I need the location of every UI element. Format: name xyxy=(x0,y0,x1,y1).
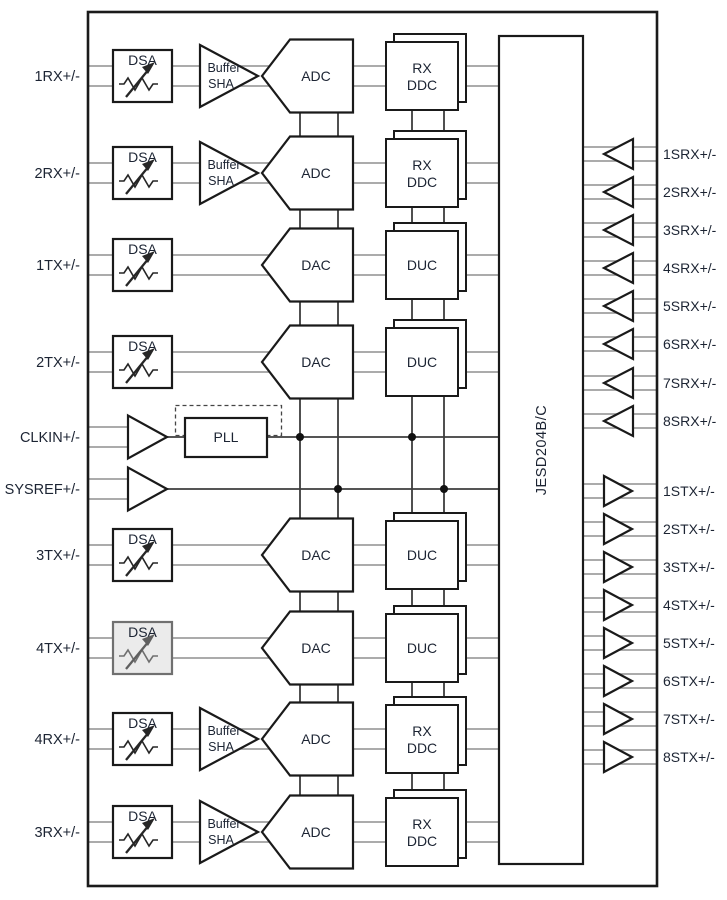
jesd-label: JESD204B/C xyxy=(534,405,550,495)
dsa-block: DSA xyxy=(113,622,172,674)
srx-receiver-triangle xyxy=(604,177,633,207)
buffer-sha-label: SHA xyxy=(208,77,234,91)
srx-port-label: 6SRX+/- xyxy=(663,336,717,352)
port-label: 3RX+/- xyxy=(34,825,80,841)
srx-port-label: 3SRX+/- xyxy=(663,222,717,238)
adc-label: ADC xyxy=(301,68,331,84)
srx-port-label: 5SRX+/- xyxy=(663,298,717,314)
serdes-tx-lane xyxy=(604,666,632,696)
dsa-block: DSA xyxy=(113,713,172,765)
signal-chain-row-3tx: DSADACDUC xyxy=(113,513,466,592)
clkin-buffer xyxy=(128,416,167,459)
dsa-label: DSA xyxy=(128,149,157,165)
stx-driver-triangle xyxy=(604,704,632,734)
signal-chain-row-2rx: DSABufferSHAADCRXDDC xyxy=(113,131,466,210)
serdes-tx-lane xyxy=(604,742,632,772)
buffer-sha-label: Buffer xyxy=(207,817,240,831)
dsa-block: DSA xyxy=(113,529,172,581)
serdes-tx-lane xyxy=(604,552,632,582)
srx-receiver-triangle xyxy=(604,253,633,283)
rx-ddc-label: DDC xyxy=(407,77,437,93)
signal-chain-row-1rx: DSABufferSHAADCRXDDC xyxy=(113,34,466,113)
duc-label: DUC xyxy=(407,354,437,370)
stx-driver-triangle xyxy=(604,742,632,772)
port-label: 2TX+/- xyxy=(36,355,80,371)
block-diagram-figure: DSABufferSHAADCRXDDCDSABufferSHAADCRXDDC… xyxy=(0,0,727,900)
srx-receiver-triangle xyxy=(604,329,633,359)
port-label: SYSREF+/- xyxy=(5,482,81,498)
serdes-rx-lane xyxy=(604,406,633,436)
serdes-rx-lane xyxy=(604,215,633,245)
signal-chain-row-1tx: DSADACDUC xyxy=(113,223,466,302)
signal-chain-row-3rx: DSABufferSHAADCRXDDC xyxy=(113,790,466,869)
rx-ddc-label: RX xyxy=(412,60,432,76)
srx-port-label: 4SRX+/- xyxy=(663,260,717,276)
port-label: CLKIN+/- xyxy=(20,430,80,446)
serdes-rx-lane xyxy=(604,368,633,398)
signal-chain-row-4rx: DSABufferSHAADCRXDDC xyxy=(113,697,466,776)
srx-receiver-triangle xyxy=(604,406,633,436)
dsa-label: DSA xyxy=(128,241,157,257)
buffer-sha-label: Buffer xyxy=(207,158,240,172)
rx-ddc-label: DDC xyxy=(407,740,437,756)
serdes-rx-lane xyxy=(604,139,633,169)
stx-port-label: 4STX+/- xyxy=(663,597,715,613)
dsa-label: DSA xyxy=(128,808,157,824)
duc-label: DUC xyxy=(407,257,437,273)
dsa-label: DSA xyxy=(128,624,157,640)
sysref-buffer xyxy=(128,468,167,511)
signal-chain-row-sysref xyxy=(128,468,167,511)
port-label: 4RX+/- xyxy=(34,732,80,748)
adc-label: ADC xyxy=(301,165,331,181)
stx-driver-triangle xyxy=(604,628,632,658)
serdes-rx-lane xyxy=(604,291,633,321)
rx-ddc-box xyxy=(386,798,458,866)
dac-label: DAC xyxy=(301,640,331,656)
stx-driver-triangle xyxy=(604,476,632,506)
stx-port-label: 3STX+/- xyxy=(663,559,715,575)
stx-driver-triangle xyxy=(604,552,632,582)
dsa-label: DSA xyxy=(128,338,157,354)
rx-ddc-box xyxy=(386,139,458,207)
stx-port-label: 5STX+/- xyxy=(663,635,715,651)
serdes-tx-lane xyxy=(604,514,632,544)
stx-driver-triangle xyxy=(604,590,632,620)
signal-chain-row-clkin: PLL xyxy=(128,406,282,459)
stx-port-label: 6STX+/- xyxy=(663,673,715,689)
serdes-rx-lane xyxy=(604,253,633,283)
buffer-sha-label: SHA xyxy=(208,740,234,754)
adc-label: ADC xyxy=(301,824,331,840)
dsa-block: DSA xyxy=(113,147,172,199)
rx-ddc-label: RX xyxy=(412,816,432,832)
dsa-label: DSA xyxy=(128,531,157,547)
dsa-block: DSA xyxy=(113,239,172,291)
block-layer: DSABufferSHAADCRXDDCDSABufferSHAADCRXDDC… xyxy=(88,12,657,886)
buffer-sha-label: SHA xyxy=(208,833,234,847)
port-label: 4TX+/- xyxy=(36,641,80,657)
stx-port-label: 1STX+/- xyxy=(663,483,715,499)
port-label: 1TX+/- xyxy=(36,258,80,274)
stx-port-label: 8STX+/- xyxy=(663,749,715,765)
rx-ddc-box xyxy=(386,705,458,773)
stx-driver-triangle xyxy=(604,514,632,544)
buffer-sha-label: Buffer xyxy=(207,724,240,738)
sysref-junction-dot xyxy=(440,485,448,493)
srx-receiver-triangle xyxy=(604,368,633,398)
serdes-rx-lane xyxy=(604,177,633,207)
transceiver-block-diagram: DSABufferSHAADCRXDDCDSABufferSHAADCRXDDC… xyxy=(0,0,727,900)
serdes-rx-lane xyxy=(604,329,633,359)
dac-label: DAC xyxy=(301,257,331,273)
rx-ddc-label: DDC xyxy=(407,174,437,190)
buffer-sha-label: SHA xyxy=(208,174,234,188)
serdes-tx-lane xyxy=(604,476,632,506)
srx-port-label: 7SRX+/- xyxy=(663,375,717,391)
dac-label: DAC xyxy=(301,354,331,370)
srx-receiver-triangle xyxy=(604,139,633,169)
serdes-tx-lane xyxy=(604,628,632,658)
duc-label: DUC xyxy=(407,547,437,563)
buffer-sha-amp xyxy=(200,142,258,204)
buffer-sha-amp xyxy=(200,801,258,863)
clock-junction-dot xyxy=(408,433,416,441)
rx-ddc-label: DDC xyxy=(407,833,437,849)
dsa-block: DSA xyxy=(113,50,172,102)
rx-ddc-label: RX xyxy=(412,157,432,173)
signal-chain-row-4tx: DSADACDUC xyxy=(113,606,466,685)
srx-receiver-triangle xyxy=(604,291,633,321)
serdes-tx-lane xyxy=(604,704,632,734)
srx-port-label: 8SRX+/- xyxy=(663,413,717,429)
dsa-block: DSA xyxy=(113,806,172,858)
clock-junction-dot xyxy=(296,433,304,441)
dsa-label: DSA xyxy=(128,52,157,68)
port-label: 1RX+/- xyxy=(34,69,80,85)
pll-label: PLL xyxy=(214,429,239,445)
signal-chain-row-2tx: DSADACDUC xyxy=(113,320,466,399)
buffer-sha-amp xyxy=(200,45,258,107)
sysref-junction-dot xyxy=(334,485,342,493)
port-label: 3TX+/- xyxy=(36,548,80,564)
rx-ddc-label: RX xyxy=(412,723,432,739)
port-label: 2RX+/- xyxy=(34,166,80,182)
stx-port-label: 7STX+/- xyxy=(663,711,715,727)
dsa-label: DSA xyxy=(128,715,157,731)
adc-label: ADC xyxy=(301,731,331,747)
srx-receiver-triangle xyxy=(604,215,633,245)
srx-port-label: 2SRX+/- xyxy=(663,184,717,200)
dac-label: DAC xyxy=(301,547,331,563)
junction-layer xyxy=(296,433,448,493)
stx-port-label: 2STX+/- xyxy=(663,521,715,537)
stx-driver-triangle xyxy=(604,666,632,696)
srx-port-label: 1SRX+/- xyxy=(663,146,717,162)
duc-label: DUC xyxy=(407,640,437,656)
rx-ddc-box xyxy=(386,42,458,110)
serdes-tx-lane xyxy=(604,590,632,620)
buffer-sha-amp xyxy=(200,708,258,770)
buffer-sha-label: Buffer xyxy=(207,61,240,75)
dsa-block: DSA xyxy=(113,336,172,388)
